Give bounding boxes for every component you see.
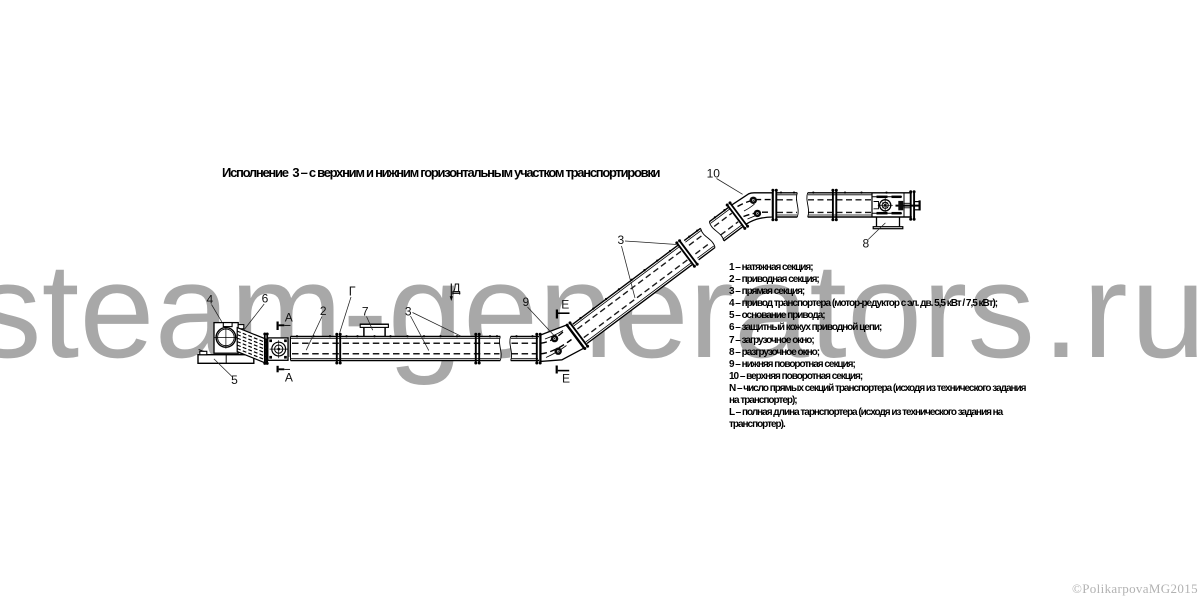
svg-text:2: 2: [320, 304, 327, 318]
svg-text:8: 8: [862, 236, 869, 250]
svg-text:10: 10: [707, 166, 721, 180]
svg-text:Е: Е: [561, 298, 569, 312]
svg-text:3: 3: [617, 233, 624, 247]
svg-text:4: 4: [206, 293, 213, 307]
svg-text:9: 9: [522, 295, 529, 309]
svg-text:Е: Е: [562, 372, 570, 386]
svg-text:Г: Г: [349, 285, 356, 299]
svg-text:6: 6: [262, 292, 269, 306]
svg-text:А: А: [285, 371, 293, 385]
svg-text:7: 7: [362, 305, 369, 319]
svg-text:5: 5: [231, 373, 238, 387]
svg-text:А: А: [285, 310, 293, 324]
